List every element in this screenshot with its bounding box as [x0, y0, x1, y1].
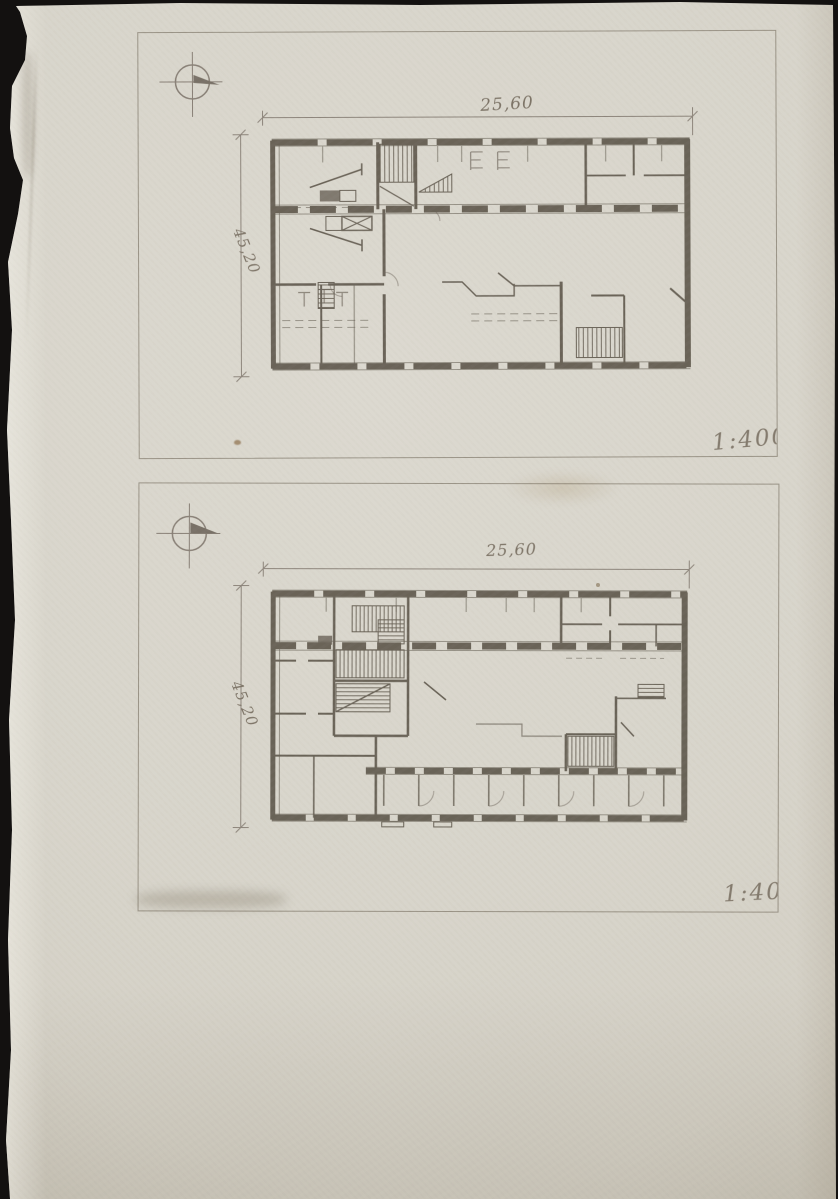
plan-panel-lower: 25,60 45,20: [138, 482, 780, 912]
top-dimension-line: [258, 107, 698, 137]
top-dimension-line: [258, 560, 694, 589]
side-dimension-label: 45,20: [227, 677, 262, 729]
paper-edge-highlight: [6, 0, 46, 1199]
paper-sheet: 25,60 45,20: [0, 0, 838, 1199]
upper-floor-plan-drawing: 25,60 45,20: [138, 31, 776, 458]
scale-label: 1:400: [711, 423, 777, 456]
floor-plan-walls: [272, 590, 687, 827]
paper-crease: [25, 45, 38, 345]
lower-floor-plan-drawing: 25,60 45,20: [139, 483, 779, 911]
plan-panel-upper: 25,60 45,20: [137, 30, 777, 459]
scale-label: 1:400: [723, 878, 779, 908]
top-dimension-label: 25,60: [485, 539, 537, 560]
paper-smudge: [22, 52, 33, 177]
north-compass-icon: [156, 503, 220, 568]
floor-plan-walls: [272, 138, 691, 370]
north-compass-icon: [159, 52, 222, 117]
side-dimension-label: 45,20: [229, 225, 264, 277]
top-dimension-label: 25,60: [479, 93, 535, 116]
